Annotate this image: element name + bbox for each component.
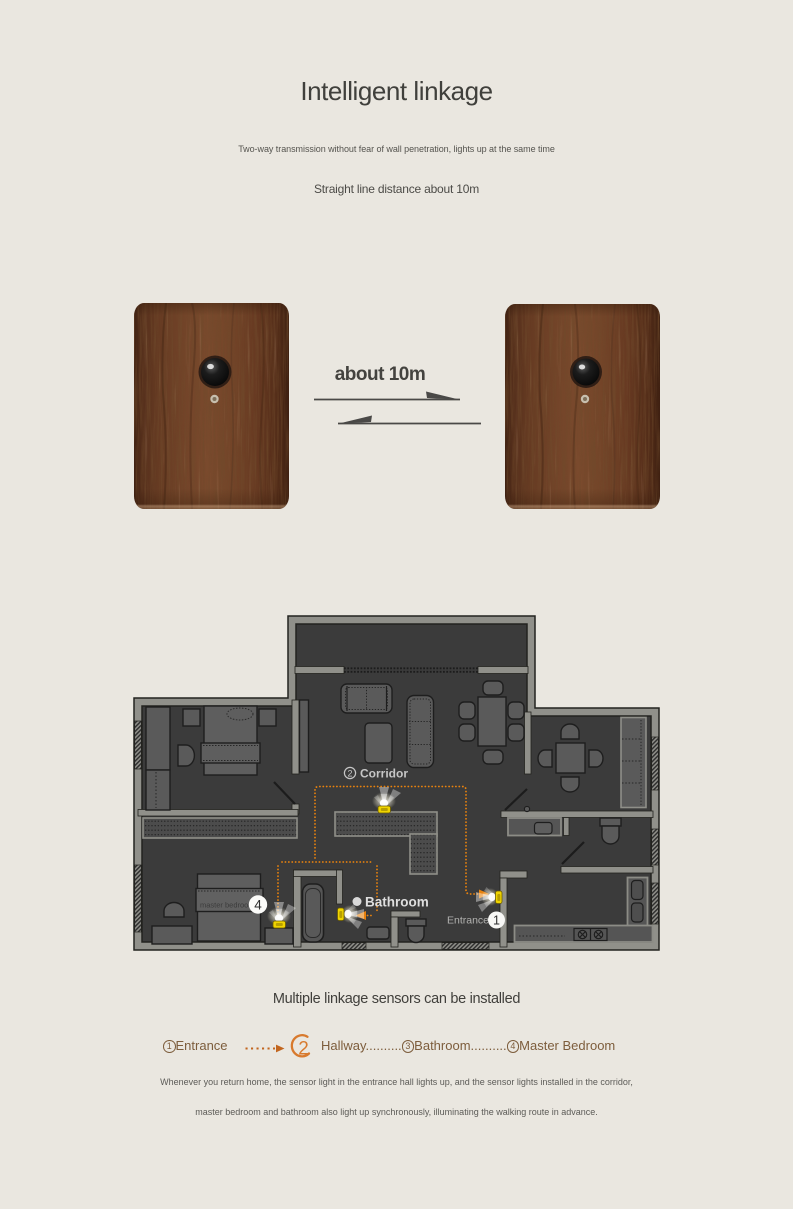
svg-text:Bathroom: Bathroom	[365, 895, 429, 910]
svg-text:master bedroom: master bedroom	[200, 901, 255, 910]
svg-text:Corridor: Corridor	[360, 767, 408, 781]
svg-text:Entrance: Entrance	[447, 915, 489, 927]
svg-text:4: 4	[254, 897, 262, 912]
svg-text:2: 2	[298, 1039, 309, 1060]
svg-text:1: 1	[493, 914, 500, 928]
svg-text:2: 2	[347, 769, 352, 779]
